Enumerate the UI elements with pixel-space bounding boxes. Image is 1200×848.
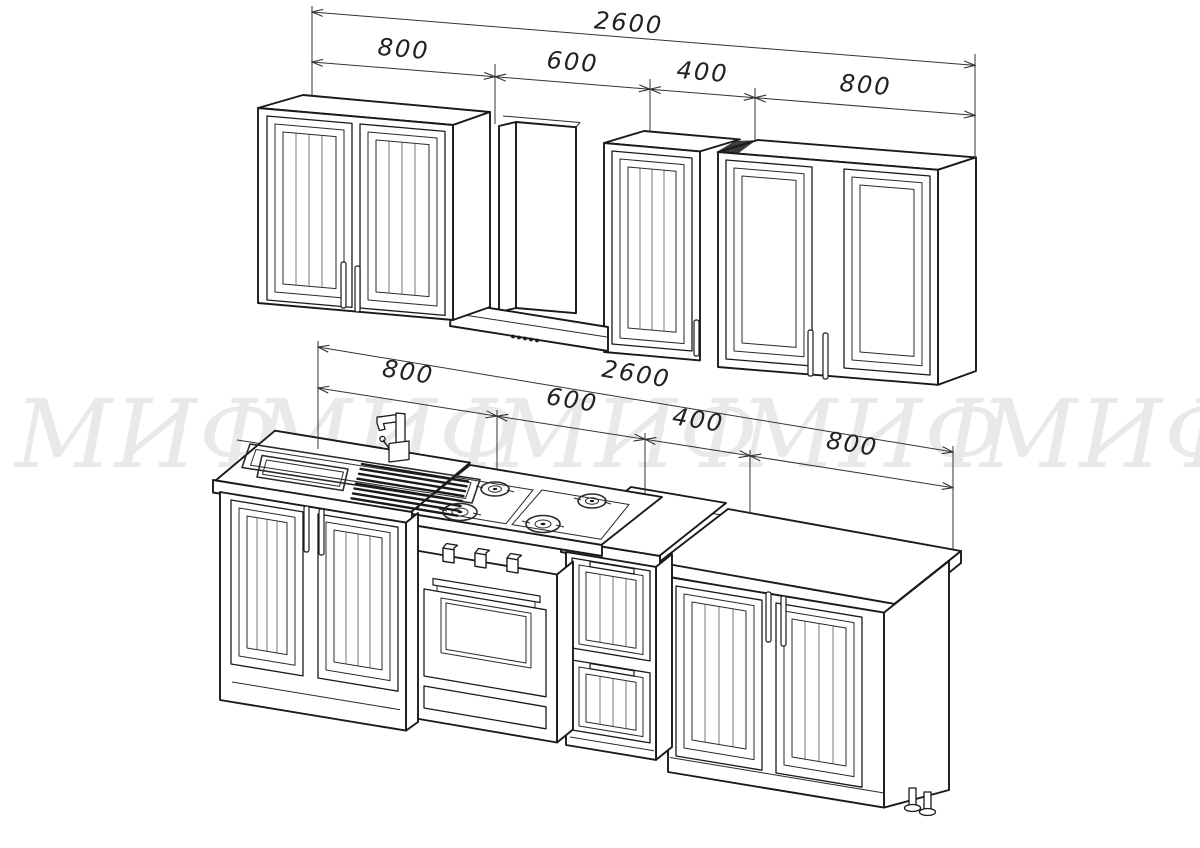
door-handle — [355, 266, 360, 312]
drawing-svg: МИФ МИФ МИФ МИФ МИФ — [0, 0, 1200, 848]
door-handle — [808, 330, 813, 376]
watermark-text: МИФ — [978, 380, 1200, 490]
door-handle — [319, 509, 324, 555]
dim-label-upper-800-left: 800 — [377, 33, 431, 65]
upper-cabinet-row — [258, 95, 976, 385]
kitchen-technical-drawing: МИФ МИФ МИФ МИФ МИФ — [0, 0, 1200, 848]
dim-label-upper-400: 400 — [676, 56, 730, 88]
door-handle — [304, 506, 309, 552]
dim-line-upper-seg1 — [312, 62, 495, 77]
dim-line-upper-seg4 — [755, 98, 975, 116]
wall-cabinet-lattice-800 — [718, 140, 976, 385]
door-handle — [766, 592, 771, 642]
dim-line-upper-seg2 — [495, 77, 650, 90]
dim-label-upper-600: 600 — [546, 46, 600, 78]
door-handle — [341, 262, 346, 308]
dim-label-upper-800-right: 800 — [839, 69, 893, 101]
base-cabinet-double-800 — [656, 509, 961, 816]
wall-cabinet-double-800 — [258, 95, 490, 320]
door-handle — [823, 333, 828, 379]
dim-label-upper-total: 2600 — [593, 6, 664, 39]
door-handle — [694, 320, 699, 356]
dim-line-upper-seg3 — [650, 89, 755, 98]
watermark: МИФ МИФ МИФ МИФ МИФ — [13, 380, 1200, 490]
door-handle — [781, 596, 786, 646]
